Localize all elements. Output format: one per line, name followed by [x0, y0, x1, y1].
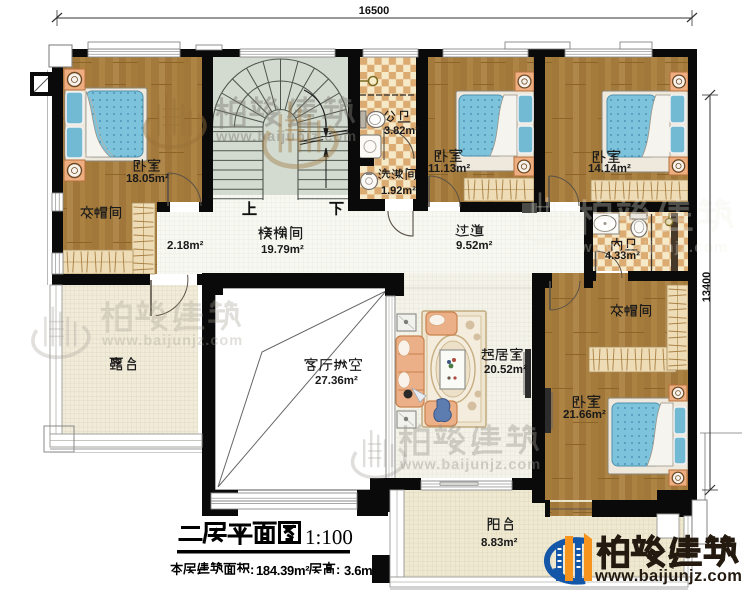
svg-text:27.36m²: 27.36m² [315, 375, 358, 387]
svg-text::: : [336, 562, 340, 577]
svg-text:14.14m²: 14.14m² [588, 163, 631, 175]
svg-text::: : [250, 562, 254, 577]
svg-text:www.baijunjz.com: www.baijunjz.com [101, 333, 243, 349]
svg-text:8.83m²: 8.83m² [481, 537, 518, 549]
svg-text:184.39m²: 184.39m² [256, 563, 310, 578]
svg-text:3.6m: 3.6m [344, 563, 372, 578]
svg-text:21.66m²: 21.66m² [563, 409, 606, 421]
svg-text:2.18m²: 2.18m² [167, 240, 204, 252]
svg-text:www.baijunjz.com: www.baijunjz.com [579, 239, 729, 256]
svg-text:16500: 16500 [359, 5, 390, 17]
svg-text:11.13m²: 11.13m² [428, 163, 470, 175]
svg-text:3.82m²: 3.82m² [384, 125, 419, 137]
svg-text:18.05m²: 18.05m² [126, 173, 169, 185]
svg-text:20.52m²: 20.52m² [484, 364, 527, 376]
svg-text:13400: 13400 [701, 272, 713, 303]
svg-text:1.92m²: 1.92m² [381, 185, 416, 197]
svg-text:9.52m²: 9.52m² [456, 240, 493, 252]
svg-text:19.79m²: 19.79m² [261, 244, 304, 256]
svg-text:1:100: 1:100 [305, 525, 353, 549]
svg-text:www.baijunjz.com: www.baijunjz.com [594, 567, 742, 585]
svg-text:www.baijunjz.com: www.baijunjz.com [399, 457, 541, 473]
